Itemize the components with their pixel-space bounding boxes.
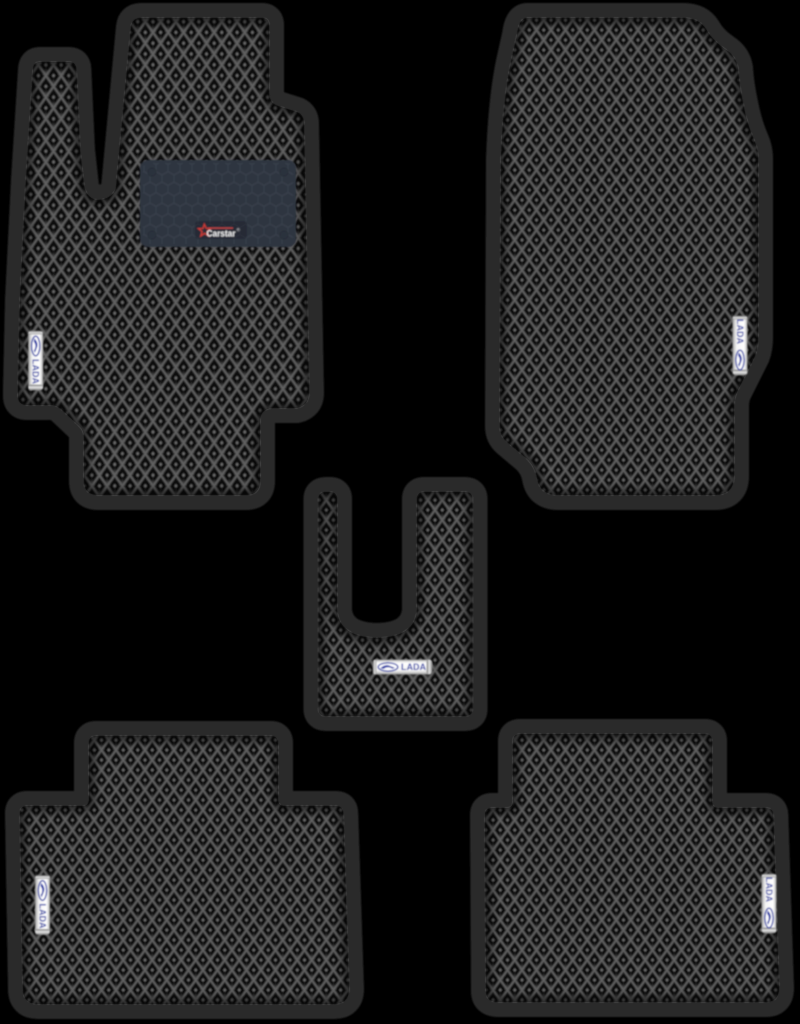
- svg-text:Carstar: Carstar: [207, 228, 236, 239]
